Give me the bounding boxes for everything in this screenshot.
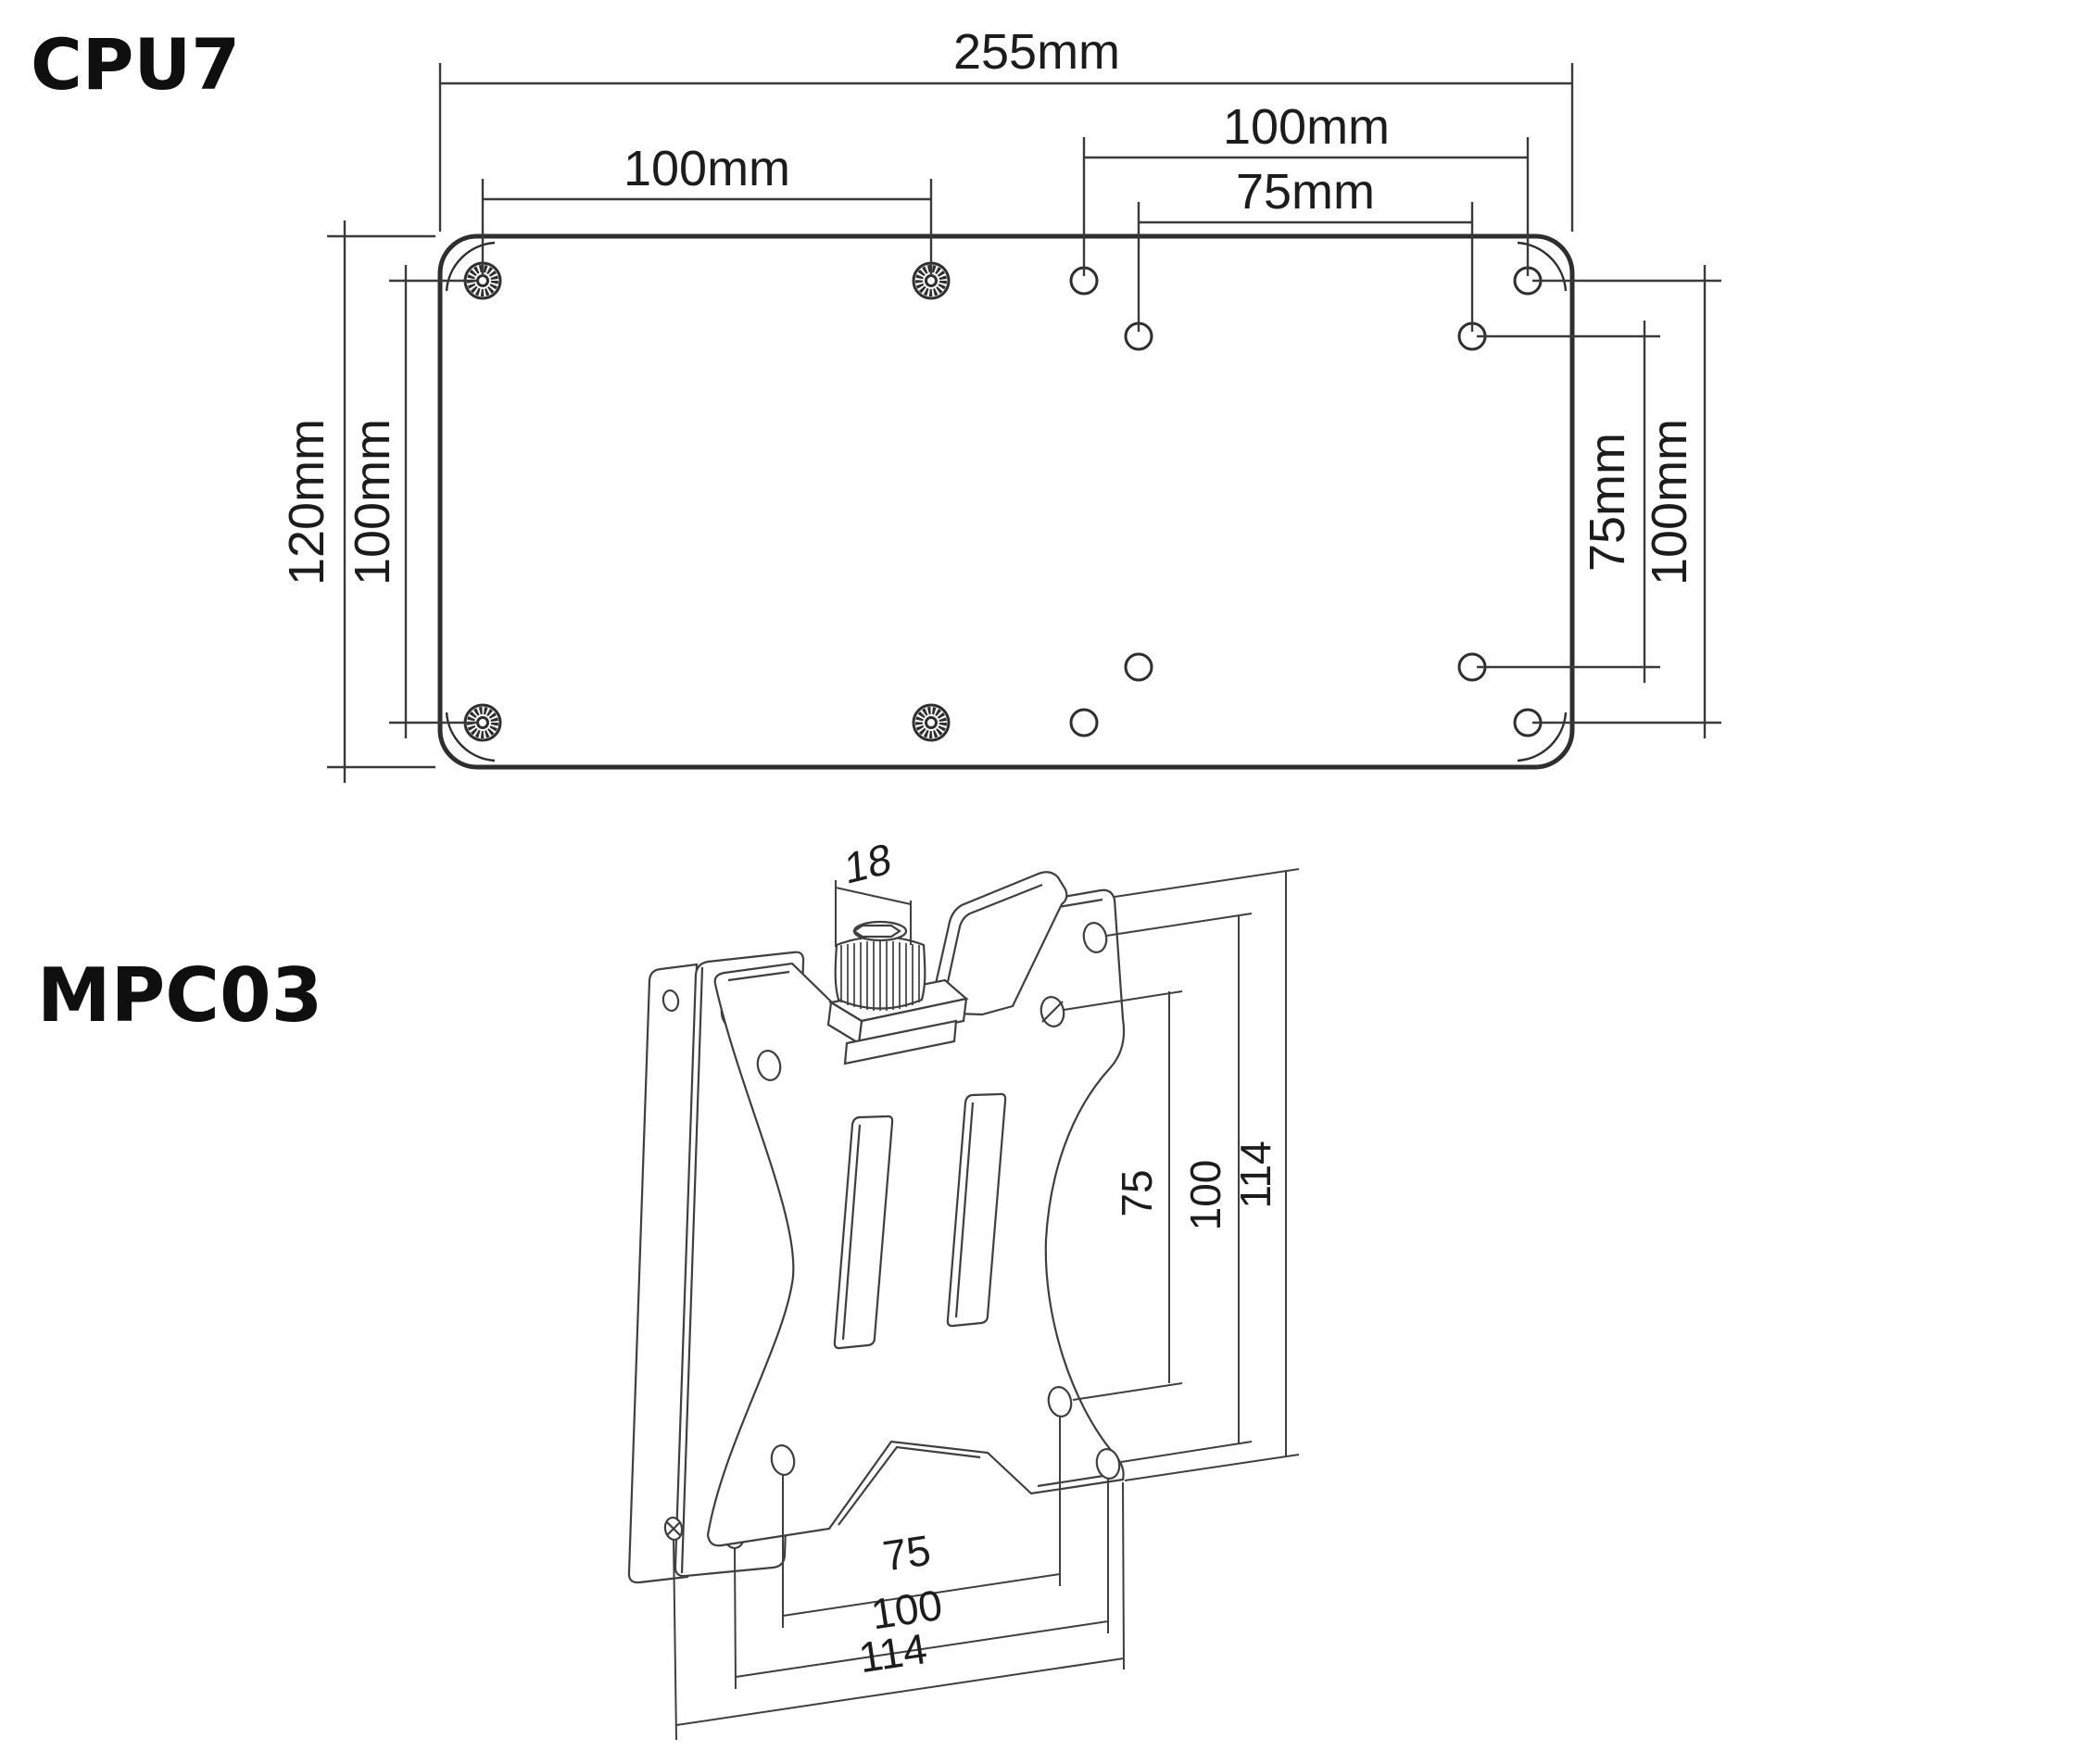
washer-hole [913,705,949,740]
cpu7-figure: CPU7 [31,23,1721,783]
dim-label-bottom-inner: 75 [879,1526,933,1581]
vesa100-hole [1071,710,1097,736]
drawing-canvas: CPU7 [0,0,2079,1764]
dim-label-overall-width: 255mm [953,24,1120,80]
mpc03-figure: MPC03 [37,834,1299,1740]
dim-label-right-outer: 114 [1231,1140,1279,1208]
cpu7-title: CPU7 [31,23,240,106]
dim-label-left-height: 100mm [345,419,400,586]
cpu7-dim-overall-width: 255mm [440,24,1572,232]
dim-label-right-inner: 75 [1113,1169,1161,1216]
dim-label-bottom-outer: 114 [856,1624,930,1682]
dim-label-right-middle: 100 [1181,1160,1229,1231]
dim-label-left-width: 100mm [624,141,790,196]
vesa75-hole [1126,654,1152,680]
dim-label-right-outer-width: 100mm [1223,99,1390,155]
dim-label-right-inner-height: 75mm [1580,433,1635,572]
technical-drawing-page: CPU7 [0,0,2079,1764]
cpu7-plate [440,236,1572,767]
dim-label-right-inner-width: 75mm [1236,164,1375,220]
dim-label-right-outer-height: 100mm [1642,419,1697,586]
mpc03-title: MPC03 [37,952,322,1039]
knob-hex-socket-icon [854,926,900,937]
dim-label-knob: 18 [843,834,892,894]
dim-label-overall-height: 120mm [279,419,334,586]
